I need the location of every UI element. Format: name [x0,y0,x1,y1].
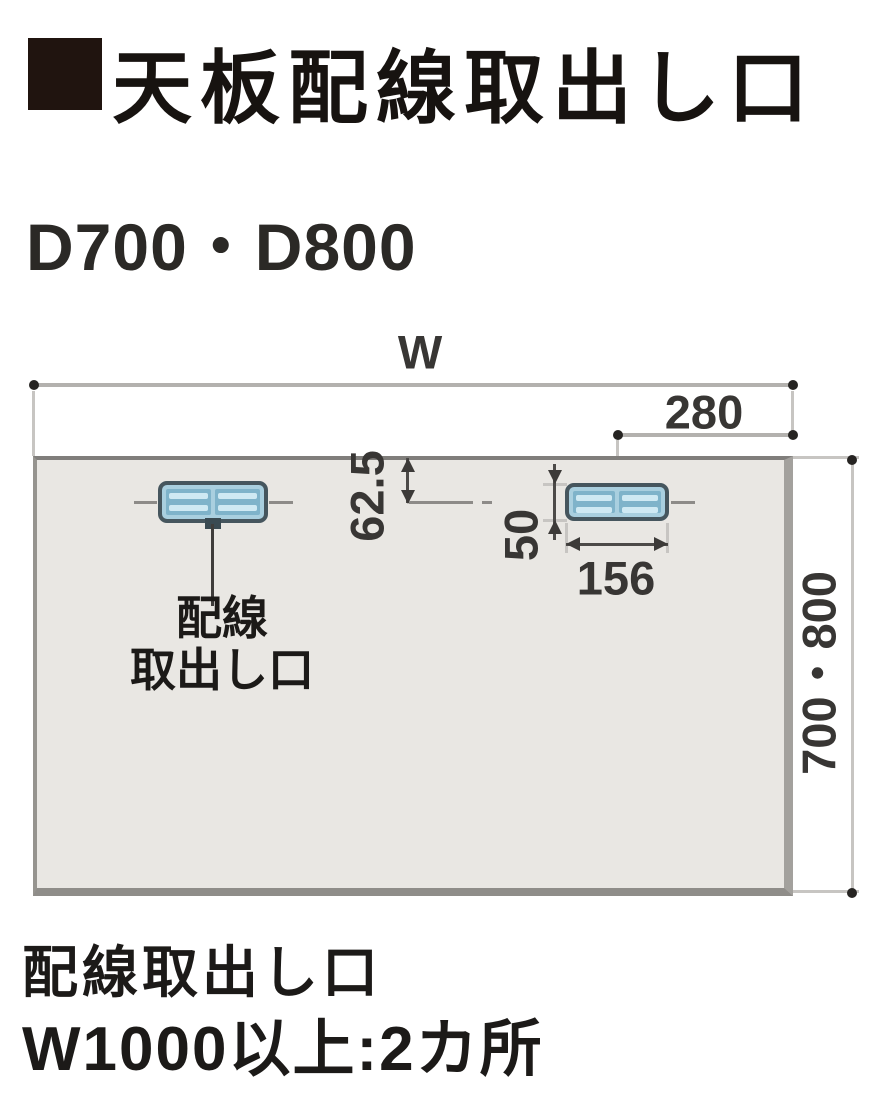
outlet-bar [218,493,257,499]
dim-line-depth [851,460,854,892]
ext-line-w-right [791,391,794,433]
dim-156-arrow-right [654,537,668,551]
outlet-callout-line1: 配線 [130,592,314,644]
title-square-icon [28,38,102,110]
dim-line-156 [566,543,668,546]
outlet-bar [218,505,257,511]
outlet-bar [622,507,658,513]
outlet-right-cell-1 [573,491,615,513]
dim-50-arrow-top [548,470,562,484]
dim-line-280 [618,433,793,437]
dim-label-280-text: 280 [665,385,743,440]
dim-280-dot-left [613,430,623,440]
footer-note-line2: W1000以上:2カ所 [22,998,544,1088]
dim-w-dot-left [29,380,39,390]
centerline-right-outlet-r [671,501,695,504]
dim-label-depth: 700・800 [781,571,850,775]
dim-depth-dot-bottom [847,888,857,898]
outlet-callout-line2: 取出し口 [130,644,314,696]
outlet-bar [169,505,208,511]
outlet-callout-label: 配線 取出し口 [130,592,314,697]
dim-label-50: 50 [494,509,549,561]
centerline-dash [482,501,492,504]
wiring-outlet-left [158,481,268,523]
spec-diagram-page: 天板配線取出し口 D700・D800 W 280 700・800 [0,0,892,1093]
page-title: 天板配線取出し口 [112,24,816,140]
centerline-left-outlet-l [134,501,157,504]
dim-label-w-text: W [398,325,442,380]
outlet-left-cell-2 [215,489,260,515]
ext-line-w-left [32,391,35,456]
dim-280-dot-right [788,430,798,440]
outlet-bar [576,495,612,501]
outlet-bar [622,495,658,501]
outlet-bar [169,493,208,499]
dim-50-arrow-bottom [548,520,562,534]
footer-note-line1: 配線取出し口 [22,928,382,1009]
outlet-left-cell-1 [166,489,211,515]
depth-variants-subtitle: D700・D800 [26,194,417,290]
dim-62-5-arrow-up [401,458,415,472]
dim-depth-dot-top [847,455,857,465]
centerline-left-outlet-r [269,501,293,504]
outlet-bar [576,507,612,513]
centerline-62-5-connector [409,501,473,504]
outlet-right-cell-2 [619,491,661,513]
dim-label-156-text: 156 [577,551,655,606]
dim-156-arrow-left [566,537,580,551]
dim-label-62-5: 62.5 [340,450,395,541]
dim-w-dot-right [788,380,798,390]
wiring-outlet-right [565,483,669,521]
